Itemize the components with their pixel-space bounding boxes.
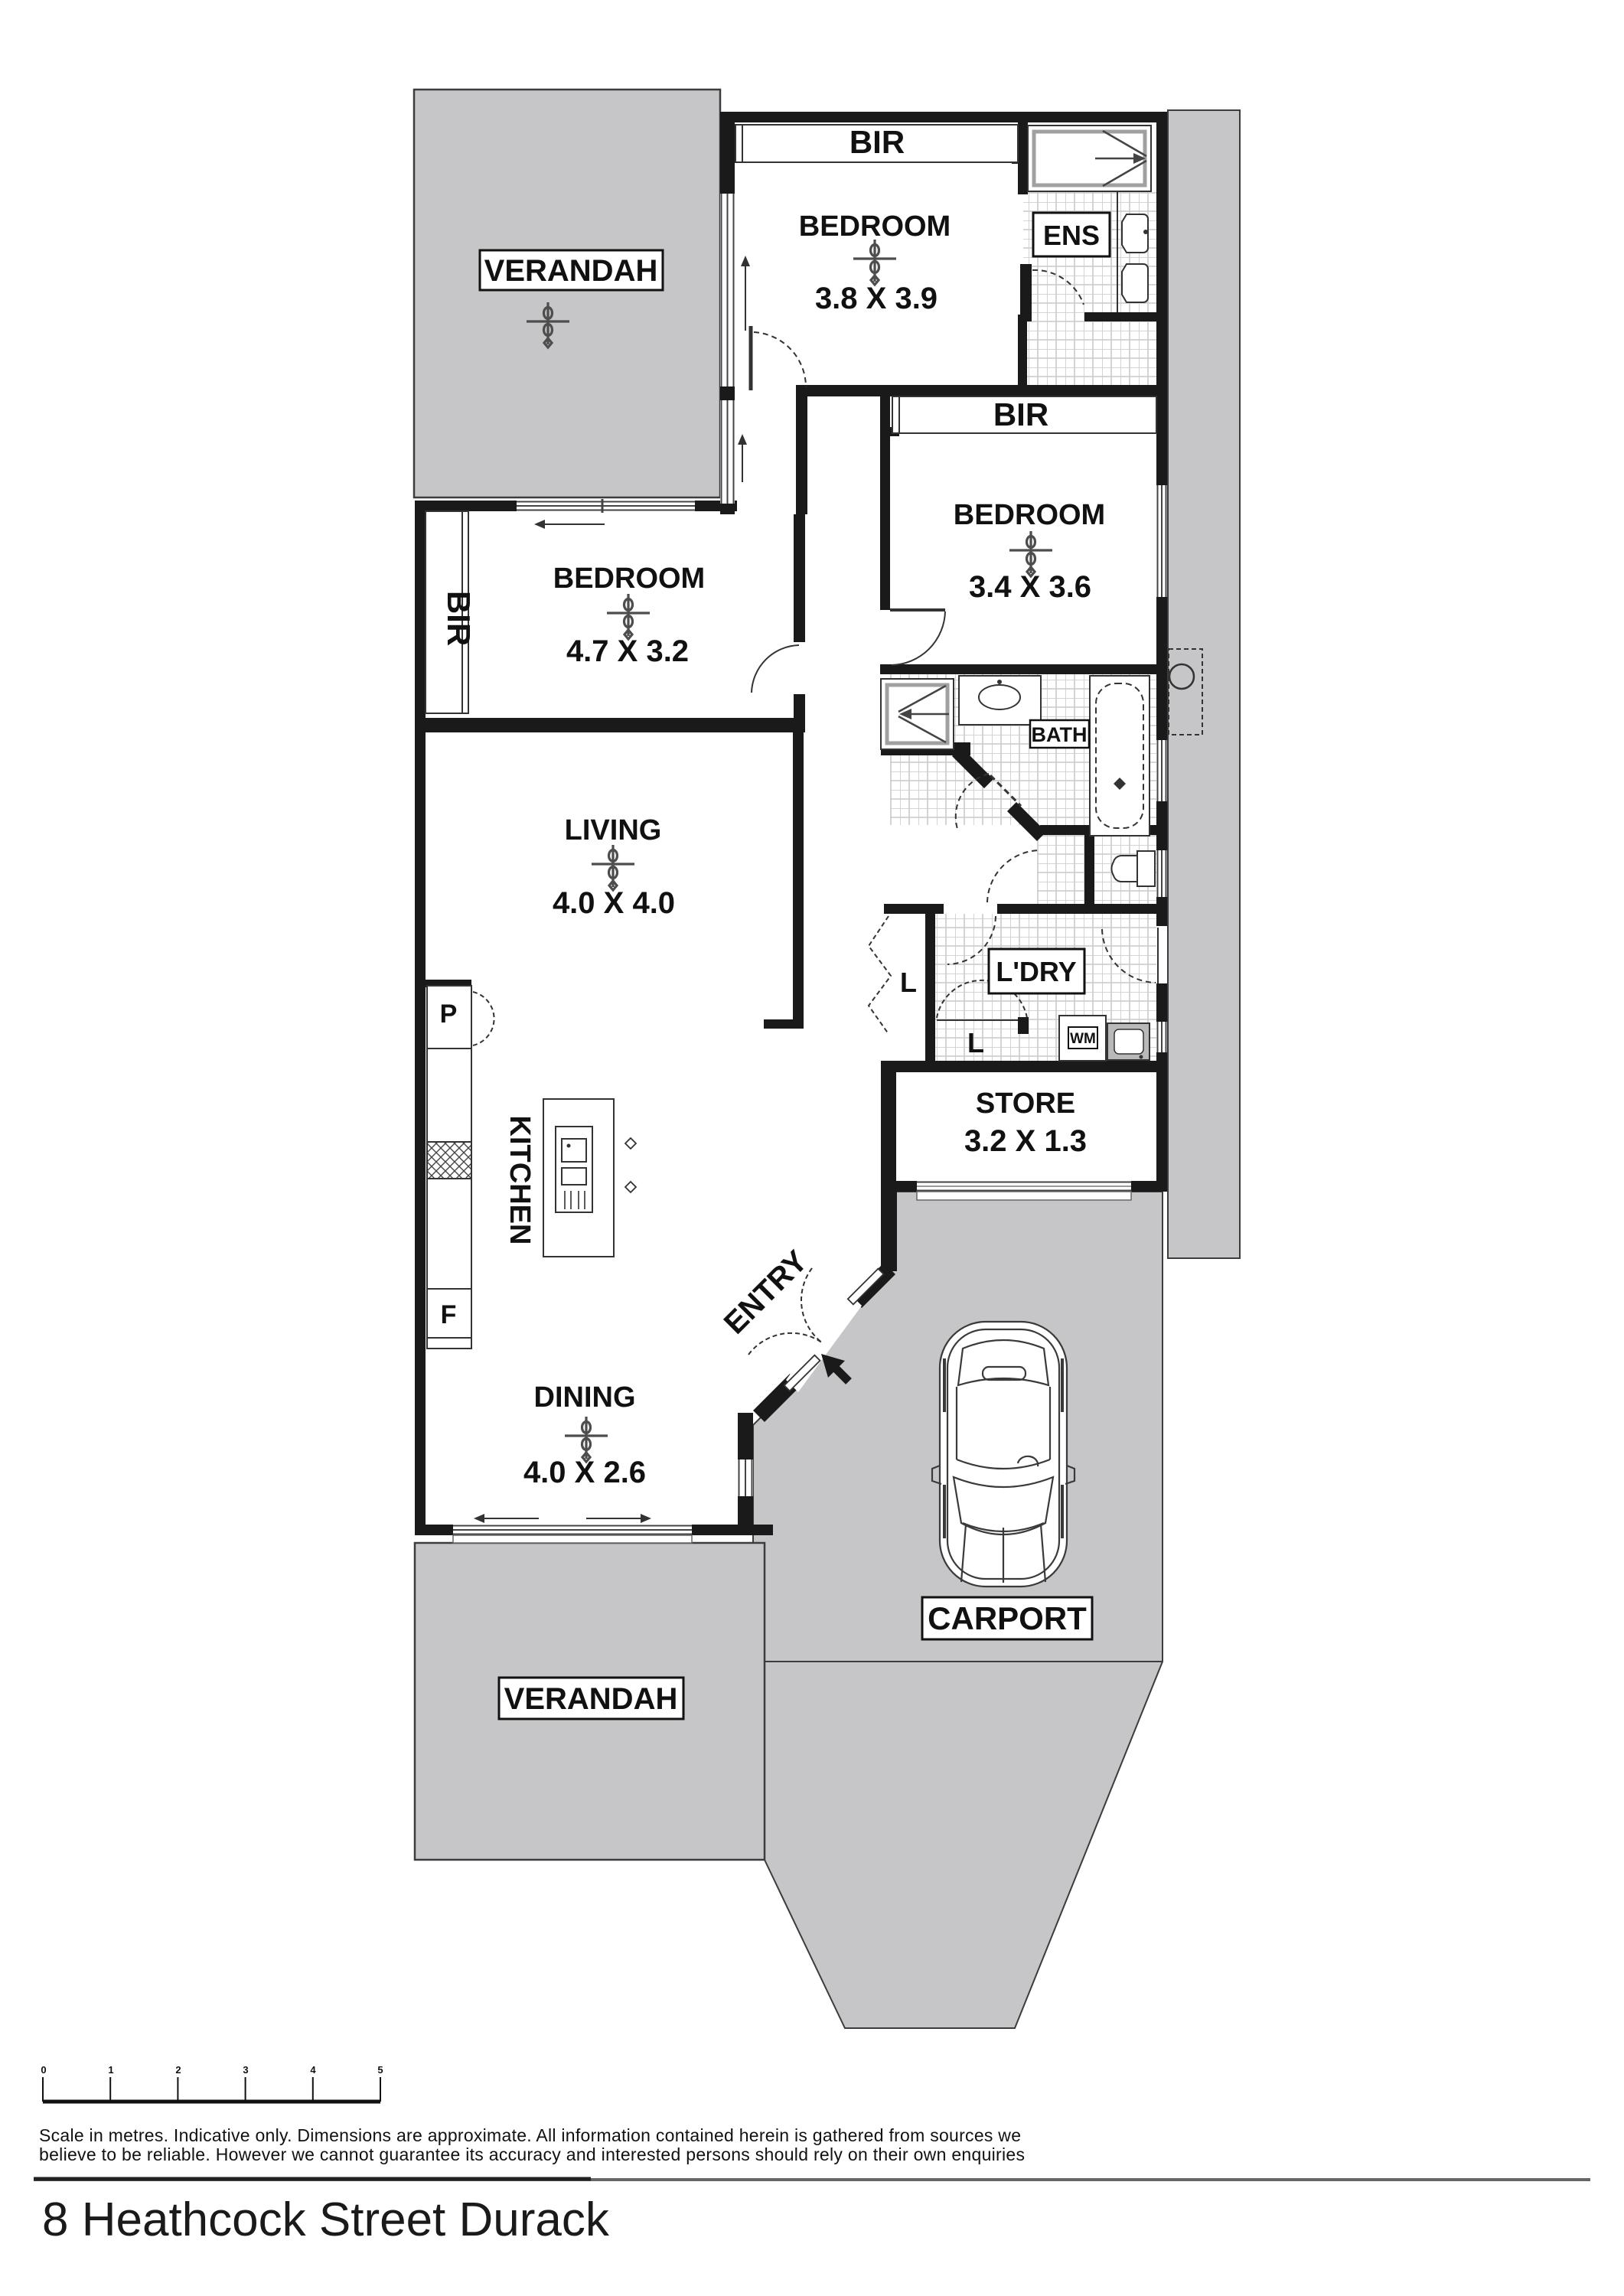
- svg-text:DINING: DINING: [534, 1381, 636, 1414]
- svg-text:WM: WM: [1070, 1031, 1096, 1047]
- svg-text:BEDROOM: BEDROOM: [954, 499, 1105, 531]
- svg-text:L: L: [967, 1027, 984, 1058]
- svg-text:0: 0: [41, 2064, 46, 2076]
- svg-text:BIR: BIR: [993, 396, 1048, 432]
- svg-text:BIR: BIR: [850, 124, 905, 160]
- svg-text:4: 4: [310, 2064, 316, 2076]
- svg-text:L'DRY: L'DRY: [996, 956, 1076, 987]
- svg-text:3: 3: [243, 2064, 248, 2076]
- svg-text:3.4 X 3.6: 3.4 X 3.6: [969, 570, 1091, 604]
- svg-text:BIR: BIR: [441, 591, 477, 646]
- svg-text:1: 1: [108, 2064, 113, 2076]
- svg-text:8 Heathcock Street Durack: 8 Heathcock Street Durack: [42, 2193, 610, 2246]
- svg-text:BATH: BATH: [1032, 723, 1088, 746]
- svg-text:P: P: [440, 1000, 458, 1029]
- svg-text:STORE: STORE: [976, 1088, 1075, 1120]
- svg-text:CARPORT: CARPORT: [928, 1600, 1087, 1636]
- svg-text:believe to be reliable. Howeve: believe to be reliable. However we canno…: [39, 2144, 1025, 2164]
- svg-text:3.2 X 1.3: 3.2 X 1.3: [964, 1124, 1087, 1158]
- svg-text:LIVING: LIVING: [565, 814, 662, 846]
- svg-text:4.0 X 2.6: 4.0 X 2.6: [523, 1456, 646, 1489]
- svg-text:5: 5: [377, 2064, 383, 2076]
- svg-text:4.0 X 4.0: 4.0 X 4.0: [553, 886, 675, 920]
- svg-text:VERANDAH: VERANDAH: [484, 254, 658, 288]
- svg-text:F: F: [441, 1300, 457, 1329]
- svg-text:BEDROOM: BEDROOM: [799, 210, 951, 243]
- svg-text:4.7 X 3.2: 4.7 X 3.2: [566, 634, 689, 668]
- svg-text:Scale in metres. Indicative on: Scale in metres. Indicative only. Dimens…: [39, 2125, 1021, 2145]
- svg-text:ENS: ENS: [1043, 220, 1100, 251]
- svg-text:3.8 X 3.9: 3.8 X 3.9: [815, 282, 938, 315]
- svg-text:2: 2: [175, 2064, 181, 2076]
- svg-text:VERANDAH: VERANDAH: [504, 1682, 678, 1716]
- svg-text:L: L: [900, 967, 917, 998]
- svg-text:KITCHEN: KITCHEN: [504, 1116, 536, 1245]
- svg-text:BEDROOM: BEDROOM: [553, 563, 705, 595]
